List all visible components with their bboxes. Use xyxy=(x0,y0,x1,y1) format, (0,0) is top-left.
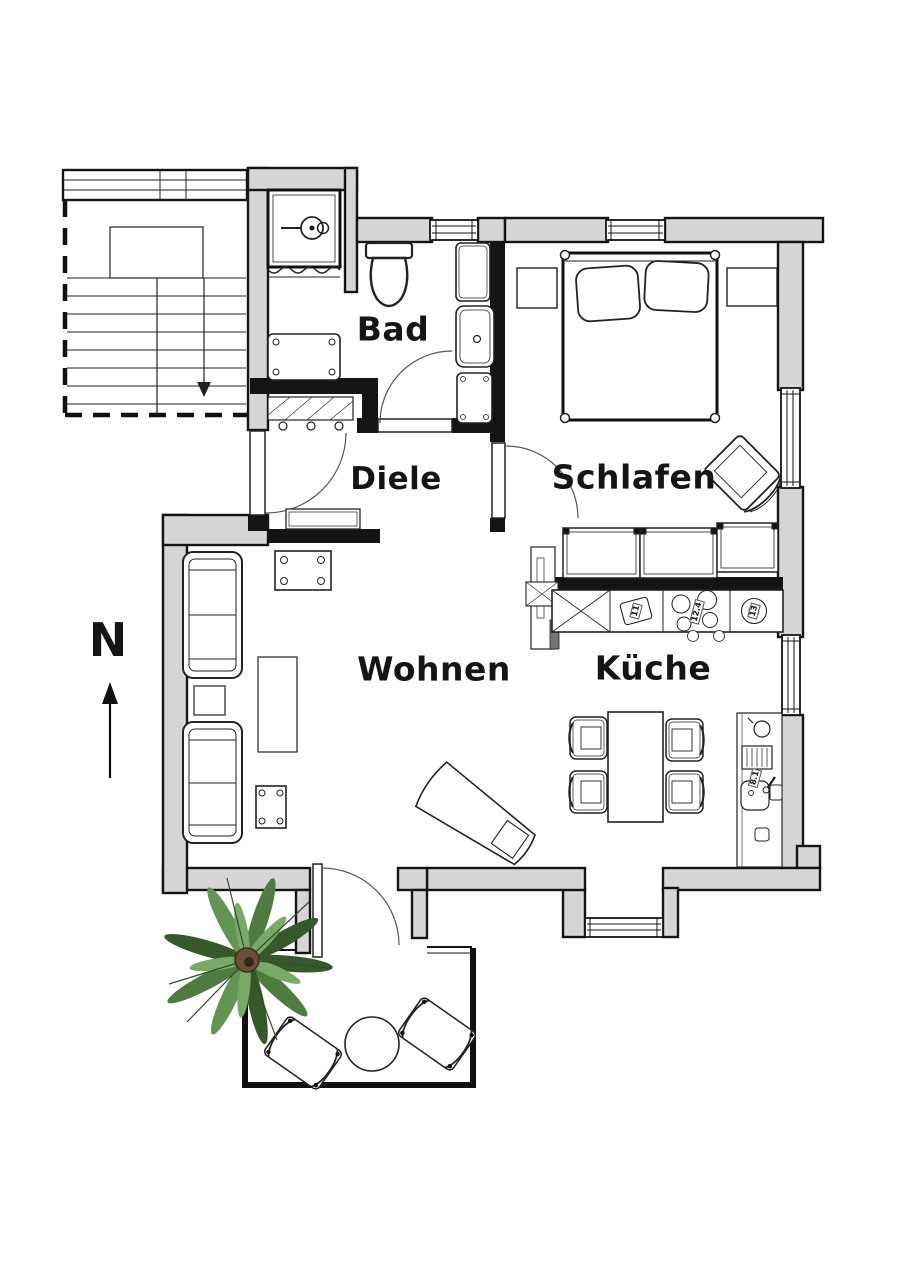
wall-segment xyxy=(490,518,505,532)
side-table xyxy=(194,686,225,715)
coat-rack xyxy=(268,397,353,430)
stair-direction-arrow xyxy=(197,382,211,397)
floor-plan-drawing xyxy=(0,0,904,1280)
washing-machine-icon xyxy=(268,334,340,380)
small-table xyxy=(275,551,331,590)
counter-detail xyxy=(755,828,769,841)
bedroom-furniture xyxy=(517,251,787,579)
coat-hook xyxy=(307,422,315,430)
deck-chair xyxy=(263,1015,343,1091)
room-label-wohnen: Wohnen xyxy=(357,650,511,689)
wall-segment xyxy=(563,888,585,937)
balcony-door xyxy=(313,864,399,957)
stair-landing xyxy=(110,227,203,278)
bed xyxy=(561,251,720,423)
wall-segment xyxy=(427,868,585,890)
bathroom-cabinet xyxy=(456,243,490,301)
dining-chair xyxy=(666,719,704,761)
stool xyxy=(256,786,286,828)
wall-segment xyxy=(797,846,820,868)
dining-chair xyxy=(666,771,704,813)
room-label-bad: Bad xyxy=(357,310,430,349)
wall-segment xyxy=(412,890,427,938)
window xyxy=(606,220,665,240)
chaise-longue xyxy=(413,760,542,873)
window xyxy=(430,220,478,240)
stair-window-band xyxy=(63,170,247,200)
wall-segment xyxy=(248,168,357,190)
wall-segment xyxy=(478,218,505,242)
dining-chair xyxy=(569,717,607,759)
shower-icon xyxy=(268,190,340,277)
wall-segment xyxy=(398,868,427,890)
pillow xyxy=(575,265,641,322)
stair-dashed-outline xyxy=(65,200,247,415)
sofa xyxy=(183,552,242,678)
bathroom-door xyxy=(378,351,452,432)
window xyxy=(782,635,800,715)
staircase xyxy=(63,170,247,415)
nightstand xyxy=(727,268,777,306)
wall-segment xyxy=(778,242,803,390)
window xyxy=(585,918,663,937)
wardrobe xyxy=(640,528,717,578)
toilet-icon xyxy=(366,243,412,306)
kitchen-sink-counter xyxy=(737,713,782,867)
north-arrow-icon xyxy=(102,682,118,778)
kitchen-furniture xyxy=(552,590,783,867)
balcony-table xyxy=(345,1017,399,1071)
coffee-table xyxy=(258,657,297,752)
window xyxy=(781,388,800,488)
floor-plan: N Bad Diele Schlafen Wohnen Küche 11 12.… xyxy=(0,0,904,1280)
wall-segment xyxy=(505,218,608,242)
wardrobe xyxy=(717,523,778,572)
compass-north-label: N xyxy=(89,613,128,667)
coat-hook xyxy=(335,422,343,430)
coffee-machine-icon xyxy=(742,746,772,769)
hallway-furniture xyxy=(268,397,360,529)
sofa xyxy=(183,722,242,843)
wall-segment xyxy=(663,868,820,890)
room-label-kueche: Küche xyxy=(595,649,711,688)
doormat xyxy=(286,509,360,529)
dining-chair xyxy=(569,771,607,813)
wall-segment xyxy=(357,218,432,242)
nightstand xyxy=(517,268,557,308)
wall-segment xyxy=(357,418,378,433)
living-room-furniture xyxy=(183,547,559,873)
room-label-diele: Diele xyxy=(350,461,442,497)
wall-segment xyxy=(665,218,823,242)
wardrobe xyxy=(563,528,640,578)
deck-chair xyxy=(397,996,477,1072)
wall-segment xyxy=(345,168,357,292)
wall-segment xyxy=(268,529,380,543)
dining-table xyxy=(608,712,663,822)
wall-segment xyxy=(663,888,678,937)
bathroom-sink-icon xyxy=(456,306,494,367)
pillow xyxy=(644,260,709,312)
bathroom-cabinet-low xyxy=(457,373,492,423)
wall-segment xyxy=(552,577,783,590)
coat-hook xyxy=(279,422,287,430)
entrance-door xyxy=(250,431,346,515)
room-label-schlafen: Schlafen xyxy=(552,458,717,497)
wall-segment xyxy=(248,515,268,531)
